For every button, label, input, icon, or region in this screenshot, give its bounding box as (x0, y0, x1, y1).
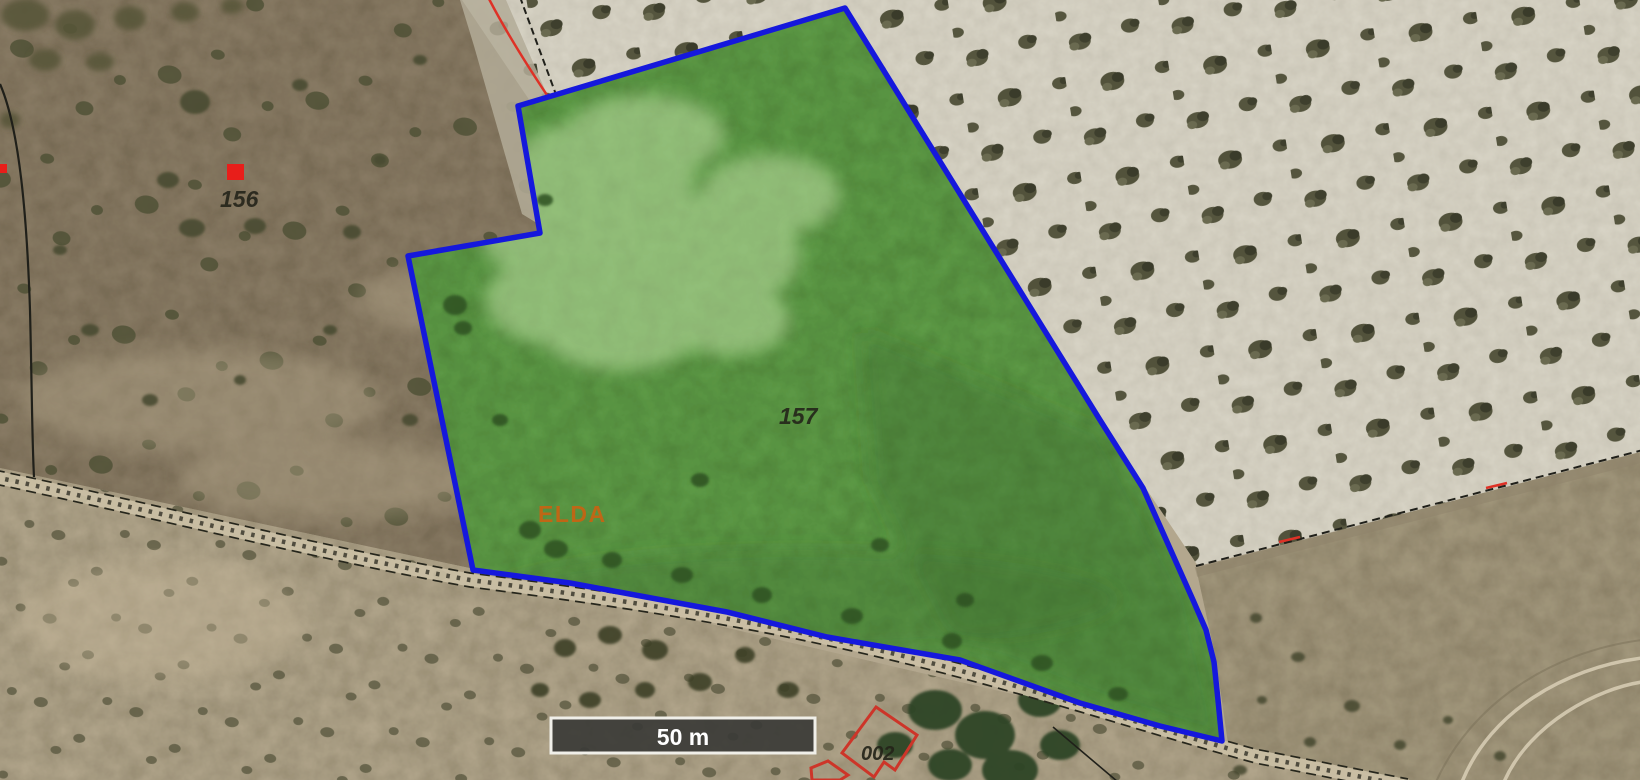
red-edge-mark (0, 164, 7, 173)
light-clearing (20, 560, 300, 680)
building-002-label: 002 (861, 743, 894, 765)
parcel-156-marker (227, 164, 244, 180)
parcel-157-label: 157 (779, 403, 819, 429)
scale-bar-label: 50 m (657, 724, 709, 750)
zone-label: ELDA (538, 501, 607, 527)
aerial-map[interactable]: 156 157 ELDA 002 50 m (0, 0, 1640, 780)
scale-bar: 50 m (551, 718, 815, 753)
parcel-156-label: 156 (220, 186, 259, 212)
